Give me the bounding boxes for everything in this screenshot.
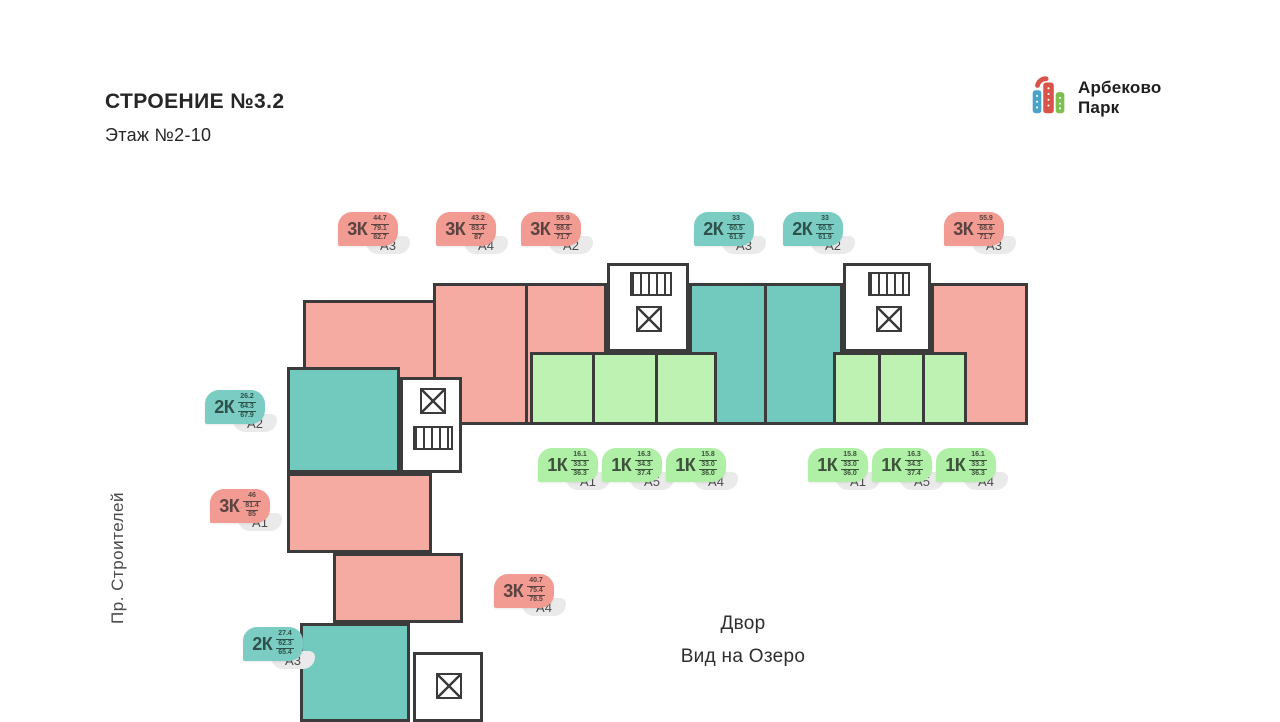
apartment-type-label: 2К — [252, 634, 272, 655]
apartment-tag-main: 3К 44.7 79.1 82.7 — [338, 212, 398, 246]
area-total: 36.3 — [571, 469, 589, 479]
apartment-tag[interactable]: А1 1К 16.1 33.3 36.3 — [538, 448, 604, 496]
apartment-areas: 46 81.4 85 — [243, 492, 261, 520]
area-living: 62.3 — [276, 639, 294, 649]
wall — [922, 352, 925, 425]
apartment-type-label: 2К — [703, 219, 723, 240]
logo-buildings-icon — [1026, 72, 1072, 123]
apartment-type-label: 3К — [503, 581, 523, 602]
apartment-type-label: 3К — [219, 496, 239, 517]
logo-text-line2: Парк — [1078, 98, 1162, 118]
apartment-areas: 16.1 33.3 36.3 — [571, 451, 589, 479]
apartment-tag[interactable]: А4 1К 15.8 33.0 36.0 — [666, 448, 732, 496]
apartment-areas: 33 60.5 61.9 — [816, 215, 834, 243]
wall — [592, 352, 595, 425]
elevator-icon — [436, 673, 462, 699]
brand-logo: Арбеково Парк — [1026, 72, 1162, 123]
apartment-areas: 16.3 34.3 37.4 — [905, 451, 923, 479]
area-living: 33.0 — [841, 460, 859, 470]
area-living: 75.4 — [527, 586, 545, 596]
apartment-areas: 33 60.5 61.9 — [727, 215, 745, 243]
apartment-type-label: 1К — [547, 455, 567, 476]
apartment-areas: 16.1 33.3 36.3 — [969, 451, 987, 479]
apartment-tag[interactable]: А4 1К 16.1 33.3 36.3 — [936, 448, 1002, 496]
area-room: 43.2 — [469, 215, 487, 224]
area-total: 65.4 — [276, 648, 294, 658]
area-living: 64.3 — [238, 402, 256, 412]
apartment-tag-main: 1К 16.3 34.3 37.4 — [872, 448, 932, 482]
apartment-tag-main: 2К 26.2 64.3 67.9 — [205, 390, 265, 424]
apartment-tag[interactable]: А1 3К 46 81.4 85 — [210, 489, 276, 537]
area-room: 15.8 — [841, 451, 859, 460]
stairs-icon — [630, 272, 672, 296]
area-living: 34.3 — [635, 460, 653, 470]
building-title: СТРОЕНИЕ №3.2 — [105, 90, 284, 114]
area-total: 71.7 — [977, 233, 995, 243]
area-total: 37.4 — [905, 469, 923, 479]
area-room: 26.2 — [238, 393, 256, 402]
apartment-tag[interactable]: А3 3К 44.7 79.1 82.7 — [338, 212, 404, 260]
apartment-type-label: 2К — [792, 219, 812, 240]
apartment-tag-main: 3К 55.9 68.6 71.7 — [944, 212, 1004, 246]
apartment-tag-main: 1К 15.8 33.0 36.0 — [666, 448, 726, 482]
area-total: 61.9 — [727, 233, 745, 243]
area-total: 85 — [246, 510, 258, 520]
apartment-areas: 43.2 83.4 87 — [469, 215, 487, 243]
area-total: 78.5 — [527, 595, 545, 605]
area-room: 55.9 — [977, 215, 995, 224]
area-living: 79.1 — [371, 224, 389, 234]
area-total: 87 — [472, 233, 484, 243]
page-header: СТРОЕНИЕ №3.2 Этаж №2-10 — [105, 90, 284, 146]
apartment-type-label: 3К — [530, 219, 550, 240]
wall — [764, 283, 767, 425]
apartment-tag-main: 3К 46 81.4 85 — [210, 489, 270, 523]
apartment-tag[interactable]: А3 3К 55.9 68.6 71.7 — [944, 212, 1010, 260]
apartment-tag[interactable]: А3 2К 27.4 62.3 65.4 — [243, 627, 309, 675]
yard-label-line2: Вид на Озеро — [648, 640, 838, 673]
apartment-type-label: 3К — [445, 219, 465, 240]
apartment-areas: 15.8 33.0 36.0 — [699, 451, 717, 479]
apartment-areas: 55.9 68.6 71.7 — [554, 215, 572, 243]
area-living: 68.6 — [554, 224, 572, 234]
apartment-areas: 15.8 33.0 36.0 — [841, 451, 859, 479]
area-room: 15.8 — [699, 451, 717, 460]
area-room: 16.1 — [571, 451, 589, 460]
apartment-tag-main: 1К 16.1 33.3 36.3 — [936, 448, 996, 482]
apartment-region-3k-a1[interactable] — [287, 473, 432, 553]
logo-text-line1: Арбеково — [1078, 78, 1162, 98]
apartment-tag-main: 2К 27.4 62.3 65.4 — [243, 627, 303, 661]
wall — [655, 352, 658, 425]
area-living: 68.6 — [977, 224, 995, 234]
apartment-tag[interactable]: А5 1К 16.3 34.3 37.4 — [602, 448, 668, 496]
area-room: 16.3 — [905, 451, 923, 460]
apartment-region-1k-right-row[interactable] — [833, 352, 967, 425]
apartment-tag[interactable]: А4 3К 43.2 83.4 87 — [436, 212, 502, 260]
area-total: 61.9 — [816, 233, 834, 243]
stairs-icon — [868, 272, 910, 296]
area-living: 60.5 — [816, 224, 834, 234]
apartment-tag-main: 1К 16.3 34.3 37.4 — [602, 448, 662, 482]
apartment-type-label: 3К — [347, 219, 367, 240]
area-living: 33.0 — [699, 460, 717, 470]
apartment-type-label: 2К — [214, 397, 234, 418]
wall — [525, 283, 528, 425]
area-room: 16.1 — [969, 451, 987, 460]
area-room: 40.7 — [527, 577, 545, 586]
apartment-tag-main: 2К 33 60.5 61.9 — [783, 212, 843, 246]
apartment-type-label: 1К — [611, 455, 631, 476]
area-room: 46 — [246, 492, 258, 501]
street-label: Пр. Строителей — [108, 492, 128, 624]
apartment-type-label: 1К — [675, 455, 695, 476]
apartment-tag-main: 1К 16.1 33.3 36.3 — [538, 448, 598, 482]
floor-subtitle: Этаж №2-10 — [105, 125, 284, 146]
area-room: 33 — [730, 215, 742, 224]
apartment-tag-main: 2К 33 60.5 61.9 — [694, 212, 754, 246]
apartment-tag[interactable]: А1 1К 15.8 33.0 36.0 — [808, 448, 874, 496]
apartment-tag[interactable]: А2 2К 26.2 64.3 67.9 — [205, 390, 271, 438]
area-total: 82.7 — [371, 233, 389, 243]
apartment-areas: 16.3 34.3 37.4 — [635, 451, 653, 479]
area-living: 81.4 — [243, 501, 261, 511]
area-room: 44.7 — [371, 215, 389, 224]
area-room: 55.9 — [554, 215, 572, 224]
area-living: 33.3 — [571, 460, 589, 470]
apartment-region-3k-a4-wing[interactable] — [333, 553, 463, 623]
area-living: 83.4 — [469, 224, 487, 234]
area-total: 71.7 — [554, 233, 572, 243]
yard-label-line1: Двор — [648, 607, 838, 640]
area-total: 37.4 — [635, 469, 653, 479]
area-room: 33 — [819, 215, 831, 224]
apartment-type-label: 1К — [881, 455, 901, 476]
apartment-tag[interactable]: А3 2К 33 60.5 61.9 — [694, 212, 760, 260]
apartment-tag[interactable]: А2 3К 55.9 68.6 71.7 — [521, 212, 587, 260]
apartment-areas: 55.9 68.6 71.7 — [977, 215, 995, 243]
apartment-region-2k-a2[interactable] — [287, 367, 400, 473]
apartment-region-2k-a3[interactable] — [300, 623, 410, 722]
apartment-type-label: 3К — [953, 219, 973, 240]
area-total: 36.0 — [699, 469, 717, 479]
floor-plan-page: СТРОЕНИЕ №3.2 Этаж №2-10 Арбеково Парк П… — [0, 0, 1280, 722]
area-total: 67.9 — [238, 411, 256, 421]
stairs-icon — [413, 426, 453, 450]
area-living: 33.3 — [969, 460, 987, 470]
apartment-type-label: 1К — [945, 455, 965, 476]
apartment-areas: 40.7 75.4 78.5 — [527, 577, 545, 605]
stair-core — [413, 652, 483, 722]
stair-core — [400, 377, 462, 473]
elevator-icon — [420, 388, 446, 414]
apartment-tag-main: 3К 55.9 68.6 71.7 — [521, 212, 581, 246]
area-living: 60.5 — [727, 224, 745, 234]
stair-core — [843, 263, 931, 352]
elevator-icon — [636, 306, 662, 332]
area-total: 36.3 — [969, 469, 987, 479]
yard-label: Двор Вид на Озеро — [648, 607, 838, 674]
area-room: 27.4 — [276, 630, 294, 639]
area-living: 34.3 — [905, 460, 923, 470]
stair-core — [607, 263, 689, 352]
area-room: 16.3 — [635, 451, 653, 460]
wall — [878, 352, 881, 425]
apartment-areas: 27.4 62.3 65.4 — [276, 630, 294, 658]
apartment-type-label: 1К — [817, 455, 837, 476]
apartment-tag[interactable]: А2 2К 33 60.5 61.9 — [783, 212, 849, 260]
apartment-tag[interactable]: А5 1К 16.3 34.3 37.4 — [872, 448, 938, 496]
elevator-icon — [876, 306, 902, 332]
apartment-areas: 44.7 79.1 82.7 — [371, 215, 389, 243]
apartment-tag-main: 3К 43.2 83.4 87 — [436, 212, 496, 246]
apartment-areas: 26.2 64.3 67.9 — [238, 393, 256, 421]
logo-text: Арбеково Парк — [1078, 78, 1162, 117]
apartment-tag-main: 1К 15.8 33.0 36.0 — [808, 448, 868, 482]
apartment-region-1k-left-row[interactable] — [530, 352, 717, 425]
apartment-tag-main: 3К 40.7 75.4 78.5 — [494, 574, 554, 608]
area-total: 36.0 — [841, 469, 859, 479]
apartment-tag[interactable]: А4 3К 40.7 75.4 78.5 — [494, 574, 560, 622]
